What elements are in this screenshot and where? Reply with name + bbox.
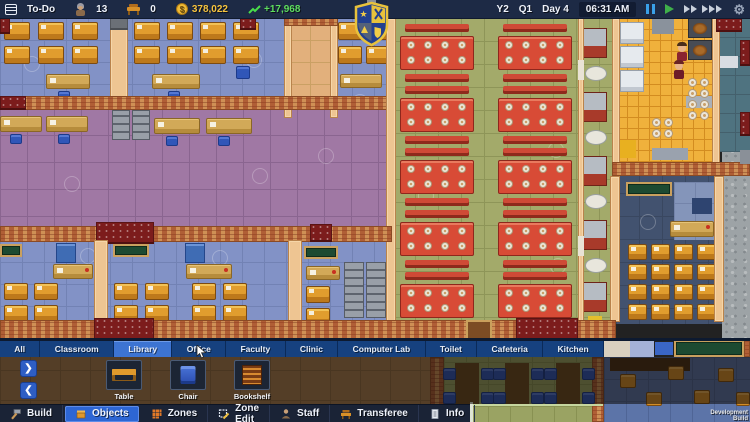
- fast-forward-button[interactable]: [684, 5, 698, 13]
- palette-item-label: Bookshelf: [222, 392, 282, 402]
- tab-classroom[interactable]: Classroom: [40, 341, 114, 357]
- map-wall: [288, 240, 302, 326]
- map-wall: [386, 18, 396, 340]
- income-chart-icon: [248, 4, 261, 15]
- map-maroon: [0, 18, 10, 34]
- map-concrete: [722, 152, 750, 342]
- object-palette: ❯ ❮ TableChairBookshelf: [0, 357, 750, 404]
- map-maroon: [740, 40, 750, 66]
- map-oval: [585, 258, 607, 273]
- map-board: [113, 244, 149, 257]
- table-icon: [112, 369, 136, 381]
- todo-label[interactable]: To-Do: [27, 4, 55, 15]
- pause-button[interactable]: [646, 4, 655, 14]
- map-box: [604, 340, 630, 357]
- map-wall: [612, 18, 620, 170]
- toolbar-button-label: Build: [27, 408, 52, 419]
- map-box: [740, 150, 750, 164]
- watermark: Development Build: [694, 410, 748, 422]
- toolbar-button-objects[interactable]: Objects: [65, 406, 139, 422]
- zone-edit-icon: [218, 408, 230, 420]
- map-fridge: [620, 22, 644, 44]
- palette-item-table[interactable]: [106, 360, 142, 390]
- income-value: +17,968: [264, 4, 300, 15]
- map-tdesk: [340, 74, 382, 88]
- map-chair: [218, 136, 230, 146]
- clock-time: 06:31 AM: [579, 2, 637, 17]
- toolbar-button-label: Zones: [168, 408, 197, 419]
- map-tdesk: [46, 74, 90, 89]
- map-wall: [110, 18, 128, 108]
- toolbar-button-zone-edit[interactable]: Zone Edit: [208, 405, 270, 422]
- box-icon: [75, 408, 87, 420]
- map-maroon: [310, 224, 332, 242]
- date-day: Day 4: [542, 4, 569, 15]
- chair-icon: [181, 366, 196, 384]
- toolbar-button-label: Info: [446, 408, 464, 419]
- bookshelf-icon: [242, 365, 262, 385]
- toolbar-button-label: Staff: [297, 408, 319, 419]
- play-button[interactable]: [665, 4, 674, 14]
- map-cab: [366, 262, 386, 318]
- map-maroon: [240, 18, 256, 30]
- tab-toilet[interactable]: Toilet: [426, 341, 478, 357]
- map-cab: [132, 110, 150, 140]
- toolbar-button-label: Objects: [92, 408, 129, 419]
- map-fridge: [620, 70, 644, 92]
- staff-person-icon: [280, 408, 292, 420]
- map-board: [0, 244, 22, 257]
- map-counter: [583, 282, 607, 312]
- toolbar-button-zones[interactable]: Zones: [141, 405, 208, 422]
- settings-gear-icon[interactable]: ⚙: [733, 3, 745, 16]
- tab-kitchen[interactable]: Kitchen: [543, 341, 604, 357]
- mouse-cursor: [196, 345, 208, 359]
- map-tdesk: [206, 118, 252, 134]
- map-oval: [585, 130, 607, 145]
- toolbar-button-info[interactable]: Info: [419, 405, 475, 422]
- map-box: [620, 140, 636, 158]
- toolbar-button-transferee[interactable]: Transferee: [330, 405, 419, 422]
- map-wall: [714, 176, 724, 322]
- map-stove: [688, 18, 712, 38]
- map-box: [655, 342, 673, 355]
- map-decal: [252, 168, 268, 184]
- tab-faculty[interactable]: Faculty: [226, 341, 285, 357]
- map-board: [674, 340, 744, 357]
- map-counter: [583, 28, 607, 58]
- desks-icon: [127, 4, 140, 15]
- map-tdesk: [186, 264, 232, 279]
- map-door: [466, 320, 492, 340]
- map-person: [673, 60, 685, 80]
- toolbar-button-label: Zone Edit: [235, 403, 259, 422]
- map-brick: [0, 226, 392, 242]
- map-box: [652, 148, 688, 160]
- coin-icon: $: [176, 3, 188, 15]
- map-box: [578, 236, 584, 256]
- tab-clinic[interactable]: Clinic: [286, 341, 339, 357]
- map-maroon: [740, 112, 750, 136]
- map-bluecab: [185, 243, 205, 263]
- tab-computer-lab[interactable]: Computer Lab: [338, 341, 425, 357]
- map-counter: [583, 156, 607, 186]
- tab-cafeteria[interactable]: Cafeteria: [477, 341, 543, 357]
- map-chair: [166, 136, 178, 146]
- tab-library[interactable]: Library: [114, 341, 172, 357]
- map-brick: [0, 96, 392, 110]
- map-oval: [585, 66, 607, 81]
- map-maroon: [0, 96, 26, 110]
- map-box: [692, 198, 712, 214]
- tab-all[interactable]: All: [0, 341, 40, 357]
- map-bluecab: [56, 243, 76, 263]
- toolbar-button-label: Transferee: [357, 408, 408, 419]
- map-counter: [583, 92, 607, 122]
- map-maroon: [716, 18, 742, 32]
- toolbar-button-build[interactable]: Build: [0, 405, 63, 422]
- palette-scroll-left-button[interactable]: ❮: [20, 382, 37, 399]
- map-wall: [610, 176, 620, 322]
- map-brick: [612, 162, 750, 176]
- info-book-icon: [429, 408, 441, 420]
- map-person: [676, 42, 688, 62]
- map-box: [652, 18, 674, 34]
- students-count: 13: [96, 4, 107, 15]
- map-fridge: [620, 46, 644, 68]
- game-viewport[interactable]: To-Do 13 0 $ 378,022 +17,968 Y2 Q1 Day 4…: [0, 0, 750, 422]
- map-box: [718, 56, 738, 68]
- map-board: [626, 182, 672, 196]
- school-crest: ★: [353, 0, 390, 47]
- hammer-icon: [10, 408, 22, 420]
- map-tdesk: [46, 116, 88, 132]
- map-brick: [284, 18, 338, 26]
- date-quarter: Q1: [519, 4, 532, 15]
- map-chair: [58, 134, 70, 144]
- map-brick: [744, 340, 750, 357]
- desks-count: 0: [150, 4, 156, 15]
- map-tdesk: [306, 266, 340, 280]
- map-stove: [688, 40, 712, 60]
- map-decal: [640, 214, 656, 230]
- map-tdesk: [152, 74, 200, 89]
- date-year: Y2: [497, 4, 509, 15]
- transferee-desk-icon: [340, 408, 352, 420]
- map-graycap: [110, 18, 128, 30]
- students-icon: [75, 3, 86, 16]
- map-chair: [10, 134, 22, 144]
- bottom-toolbar: BuildObjectsZonesZone EditStaffTransfere…: [0, 404, 470, 422]
- map-cab: [112, 110, 130, 140]
- map-chair: [236, 66, 250, 79]
- toolbar-button-staff[interactable]: Staff: [270, 405, 330, 422]
- map-wall: [94, 240, 108, 326]
- map-box: [473, 404, 603, 406]
- map-decal: [64, 176, 80, 192]
- map-oval: [585, 194, 607, 209]
- room-category-tabs: AllClassroomLibraryOfficeFacultyClinicCo…: [0, 341, 604, 357]
- map-cab: [344, 262, 364, 318]
- svg-text:★: ★: [359, 9, 367, 19]
- zones-grid-icon: [151, 408, 163, 420]
- map-wall: [712, 18, 720, 170]
- map-counter: [583, 220, 607, 250]
- map-box: [578, 60, 584, 80]
- map-decal: [318, 148, 334, 164]
- map-tdesk: [154, 118, 200, 134]
- map-tdesk: [670, 221, 714, 237]
- todo-menu-icon[interactable]: [5, 4, 17, 15]
- palette-scroll-right-button[interactable]: ❯: [20, 360, 37, 377]
- map-board: [304, 246, 338, 259]
- map-tdesk: [0, 116, 42, 132]
- palette-item-label: Table: [94, 392, 154, 402]
- fastest-forward-button[interactable]: [702, 5, 723, 13]
- palette-item-bookshelf[interactable]: [234, 360, 270, 390]
- palette-item-label: Chair: [158, 392, 218, 402]
- money-value: 378,022: [192, 4, 228, 15]
- map-box: [630, 340, 654, 357]
- map-tdesk: [53, 264, 93, 279]
- palette-item-chair[interactable]: [170, 360, 206, 390]
